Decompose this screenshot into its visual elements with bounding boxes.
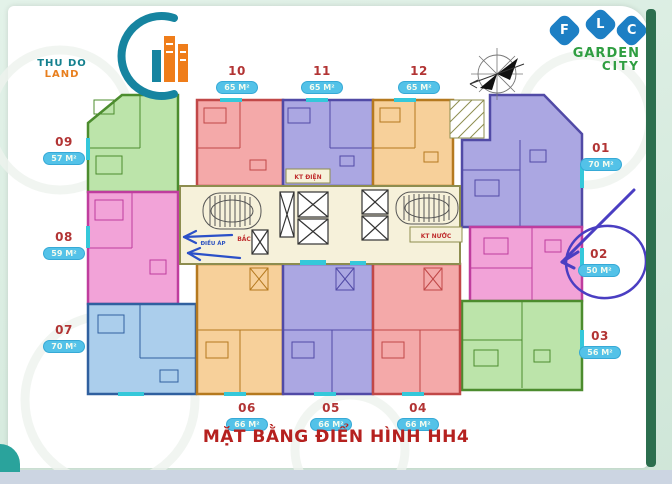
flc-logo: F L C GARDEN CITY — [540, 8, 644, 72]
unit-02-area-badge: 50 M² — [578, 264, 619, 277]
flc-letter-c: C — [627, 23, 637, 38]
unit-11-number: 11 — [298, 65, 346, 77]
thudoland-text-primary: THU DO — [37, 58, 87, 69]
unit-12-label: 12 65 M² — [395, 65, 443, 94]
flc-letter-f: F — [560, 23, 569, 38]
unit-07-plan — [88, 304, 196, 394]
unit-07-area-badge: 70 M² — [43, 340, 84, 353]
flc-tile-c: C — [614, 13, 649, 48]
unit-12-area-badge: 65 M² — [398, 81, 439, 94]
kt-nuoc-room: KT NƯỚC — [410, 227, 462, 242]
unit-02-number: 02 — [575, 248, 623, 260]
page-root: KT ĐIỆN KT NƯỚC ĐIỀU ÁP BẮC — [0, 0, 672, 484]
unit-07-number: 07 — [40, 324, 88, 336]
flc-tile-f: F — [547, 13, 582, 48]
unit-10-plan — [197, 100, 283, 186]
unit-09-label: 09 57 M² — [40, 136, 88, 165]
kt-dien-label: KT ĐIỆN — [294, 173, 321, 181]
bac-label: BẮC — [237, 235, 251, 243]
flc-city-text: CITY — [540, 59, 640, 73]
unit-04-number: 04 — [394, 402, 442, 414]
unit-07-label: 07 70 M² — [40, 324, 88, 353]
unit-04-plan — [373, 264, 460, 394]
kt-dien-room: KT ĐIỆN — [286, 169, 330, 183]
void-hatch — [450, 100, 484, 138]
unit-11-label: 11 65 M² — [298, 65, 346, 94]
unit-08-number: 08 — [40, 231, 88, 243]
unit-12-plan — [373, 100, 453, 186]
unit-12-number: 12 — [395, 65, 443, 77]
unit-05-number: 05 — [307, 402, 355, 414]
unit-06-number: 06 — [223, 402, 271, 414]
unit-05-plan — [283, 264, 373, 394]
unit-09-plan — [88, 95, 178, 192]
unit-09-number: 09 — [40, 136, 88, 148]
unit-10-area-badge: 65 M² — [216, 81, 257, 94]
unit-09-area-badge: 57 M² — [43, 152, 84, 165]
unit-08-plan — [88, 192, 178, 304]
unit-06-plan — [197, 264, 283, 394]
thudoland-text: THU DO LAND — [20, 58, 104, 80]
unit-11-area-badge: 65 M² — [301, 81, 342, 94]
kt-nuoc-label: KT NƯỚC — [421, 233, 452, 240]
unit-03-area-badge: 56 M² — [579, 346, 620, 359]
building-swoosh-icon — [112, 10, 204, 102]
unit-01-area-badge: 70 M² — [580, 158, 621, 171]
bottom-band — [0, 470, 672, 484]
unit-10-number: 10 — [213, 65, 261, 77]
unit-08-area-badge: 59 M² — [43, 247, 84, 260]
elevator-north-icon — [252, 230, 268, 254]
floor-plan-title: MẶT BẰNG ĐIỂN HÌNH HH4 — [136, 427, 536, 447]
thudoland-logo: THU DO LAND — [16, 8, 216, 78]
compass-rose-icon — [470, 48, 524, 100]
unit-03-plan — [462, 301, 582, 390]
unit-10-label: 10 65 M² — [213, 65, 261, 94]
unit-03-label: 03 56 M² — [576, 330, 624, 359]
green-edge-strip — [646, 9, 656, 467]
flc-tile-l: L — [583, 7, 618, 42]
unit-01-number: 01 — [577, 142, 625, 154]
unit-02-label: 02 50 M² — [575, 248, 623, 277]
unit-08-label: 08 59 M² — [40, 231, 88, 260]
thudoland-text-secondary: LAND — [45, 69, 80, 80]
unit-03-number: 03 — [576, 330, 624, 342]
unit-01-label: 01 70 M² — [577, 142, 625, 171]
flc-letter-l: L — [596, 17, 604, 32]
